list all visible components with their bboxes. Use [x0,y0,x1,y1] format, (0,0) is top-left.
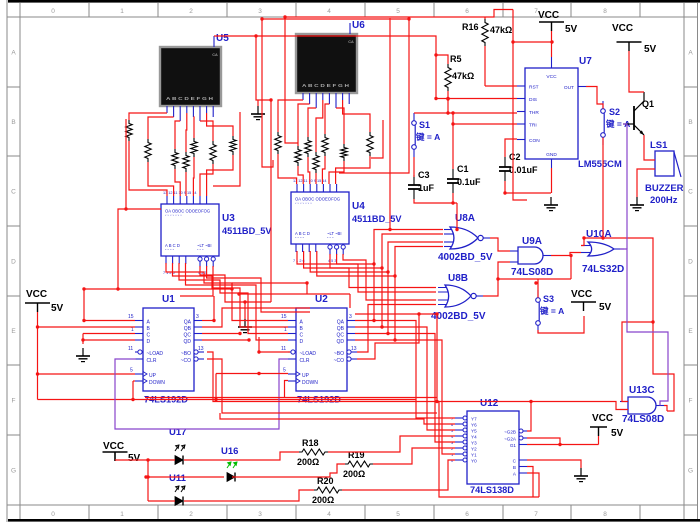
svg-text:S3: S3 [543,294,554,304]
svg-text:G1: G1 [510,443,517,448]
svg-text:47kΩ: 47kΩ [490,25,512,35]
svg-text:U16: U16 [221,446,238,457]
svg-text:1: 1 [120,511,124,518]
svg-text:15: 15 [281,314,287,320]
svg-text:200Ω: 200Ω [312,495,334,505]
svg-text:U12: U12 [480,398,499,409]
svg-text:4: 4 [327,511,331,518]
svg-text:2: 2 [189,511,193,518]
svg-text:0: 0 [51,511,55,518]
svg-text:8: 8 [603,511,607,518]
svg-text:5V: 5V [128,453,141,464]
svg-text:~LT ~BI: ~LT ~BI [327,231,342,236]
svg-text:4002BD_5V: 4002BD_5V [431,311,486,322]
svg-text:CLR: CLR [300,358,310,364]
svg-text:R18: R18 [302,438,319,448]
svg-text:A B C D E F G H: A B C D E F G H [166,96,213,101]
svg-text:~BO: ~BO [334,351,344,357]
svg-text:DOWN: DOWN [302,380,318,386]
svg-text:8: 8 [603,8,607,15]
svg-text:G: G [688,468,693,475]
svg-text:Q1: Q1 [642,99,654,109]
svg-text:U11: U11 [169,473,187,484]
svg-text:200Hz: 200Hz [650,195,678,206]
svg-text:3: 3 [258,8,262,15]
svg-text:QD: QD [184,339,192,345]
svg-text:A: A [688,50,693,57]
svg-text:~G2A: ~G2A [504,436,517,441]
svg-text:D: D [300,339,304,345]
svg-text:Y6: Y6 [471,422,477,427]
svg-text:CLR: CLR [147,358,157,364]
svg-text:CA: CA [348,40,354,44]
svg-text:ˇ ˇ ˇ ˇ ˇ ˇ ˇ: ˇ ˇ ˇ ˇ ˇ ˇ ˇ [295,202,312,207]
svg-text:Y3: Y3 [471,440,477,445]
svg-text:C: C [300,333,304,339]
svg-text:13: 13 [198,346,204,352]
svg-text:6: 6 [465,8,469,15]
svg-text:U5: U5 [216,33,229,44]
svg-text:ˇ ˇ ˇ ˇ: ˇ ˇ ˇ ˇ [165,249,175,254]
svg-text:VCC: VCC [103,441,124,452]
svg-text:F: F [12,398,16,405]
svg-text:VCC: VCC [538,10,559,21]
svg-text:D: D [11,259,16,266]
svg-text:D: D [147,339,151,345]
svg-text:5: 5 [283,368,286,374]
svg-text:~CO: ~CO [181,358,192,364]
svg-text:C3: C3 [418,170,430,180]
svg-text:4: 4 [327,8,331,15]
svg-text:0.1uF: 0.1uF [457,177,481,187]
svg-text:A B C D: A B C D [295,231,310,236]
svg-text:74LS08D: 74LS08D [622,414,664,425]
svg-text:1: 1 [120,8,124,15]
svg-text:4002BD_5V: 4002BD_5V [438,252,493,263]
svg-text:GND: GND [546,152,557,158]
svg-text:R5: R5 [450,54,462,64]
svg-text:ˇ ˇ ˇ: ˇ ˇ ˇ [197,249,204,254]
svg-text:~LOAD: ~LOAD [300,351,317,357]
svg-text:200Ω: 200Ω [343,469,365,479]
svg-text:QC: QC [337,333,345,339]
svg-text:5V: 5V [644,44,657,55]
svg-text:C: C [11,189,16,196]
svg-text:4 5 3: 4 5 3 [328,259,336,263]
svg-text:11: 11 [128,346,133,352]
svg-text:5V: 5V [565,24,578,35]
svg-text:G: G [11,468,16,475]
svg-text:QD: QD [337,339,345,345]
svg-text:QB: QB [337,326,345,332]
svg-text:2: 2 [189,8,193,15]
svg-text:QA: QA [184,320,192,326]
svg-text:200Ω: 200Ω [297,457,319,467]
svg-text:U6: U6 [352,20,365,31]
svg-text:DIS: DIS [529,97,537,103]
svg-text:3: 3 [258,511,262,518]
svg-text:4511BD_5V: 4511BD_5V [352,214,402,224]
svg-text:Y1: Y1 [471,452,477,457]
svg-text:ˇ ˇ ˇ: ˇ ˇ ˇ [327,237,334,242]
svg-text:QB: QB [184,326,192,332]
svg-text:VCC: VCC [592,413,613,424]
svg-text:~G2B: ~G2B [504,429,516,434]
svg-text:U2: U2 [315,294,328,305]
svg-text:键 = A: 键 = A [415,132,440,142]
svg-text:7 1 2 6: 7 1 2 6 [293,259,305,263]
svg-text:U8B: U8B [448,273,468,284]
svg-text:ˇ ˇ ˇ ˇ: ˇ ˇ ˇ ˇ [295,237,305,242]
svg-text:B: B [11,119,15,126]
svg-text:B: B [688,119,692,126]
svg-text:D: D [688,259,693,266]
svg-text:6: 6 [465,511,469,518]
svg-text:OA OBOC ODOEOFOG: OA OBOC ODOEOFOG [165,209,210,214]
svg-text:UP: UP [302,373,310,379]
svg-text:13: 13 [351,346,357,352]
svg-text:VCC: VCC [26,289,47,300]
svg-text:15: 15 [128,314,134,320]
svg-text:键 = A: 键 = A [539,306,564,316]
svg-text:E: E [688,328,693,335]
svg-text:5V: 5V [611,428,624,439]
svg-text:C1: C1 [457,164,469,174]
svg-text:74LS32D: 74LS32D [582,264,624,275]
svg-text:VCC: VCC [612,23,633,34]
svg-text:U4: U4 [352,201,365,212]
svg-text:1: 1 [131,327,134,333]
svg-text:3: 3 [196,314,199,320]
svg-text:S1: S1 [419,120,430,130]
svg-text:5V: 5V [599,302,612,313]
svg-text:11: 11 [281,346,286,352]
svg-text:LS1: LS1 [650,140,668,151]
svg-text:UP: UP [149,373,157,379]
svg-text:QA: QA [337,320,345,326]
svg-text:Y2: Y2 [471,446,477,451]
svg-text:B: B [513,465,516,470]
svg-text:Y4: Y4 [471,434,477,439]
svg-text:5: 5 [396,8,400,15]
svg-text:VCC: VCC [546,74,557,80]
svg-text:CA: CA [212,53,218,57]
svg-text:DOWN: DOWN [149,380,165,386]
svg-text:A B C D: A B C D [165,243,180,248]
svg-text:OUT: OUT [564,85,574,91]
svg-text:LM555CM: LM555CM [578,158,622,169]
svg-text:A B C D E F G H: A B C D E F G H [302,83,349,88]
svg-text:ˇ ˇ ˇ ˇ ˇ ˇ ˇ: ˇ ˇ ˇ ˇ ˇ ˇ ˇ [165,214,182,219]
svg-text:~CO: ~CO [334,358,345,364]
svg-text:4511BD_5V: 4511BD_5V [222,226,272,236]
svg-text:Y7: Y7 [471,416,477,421]
svg-text:R16: R16 [462,22,479,32]
svg-text:C2: C2 [509,152,521,162]
svg-text:~BO: ~BO [181,351,191,357]
svg-text:U3: U3 [222,213,235,224]
svg-text:0: 0 [51,8,55,15]
svg-text:OA OBOC ODOEOFOG: OA OBOC ODOEOFOG [295,197,340,202]
svg-text:U9A: U9A [522,236,542,247]
svg-text:U7: U7 [579,56,592,67]
svg-text:S2: S2 [609,107,620,117]
svg-text:U13C: U13C [629,385,655,396]
svg-text:3: 3 [349,314,352,320]
svg-text:RST: RST [529,85,539,91]
svg-text:U1: U1 [162,294,175,305]
svg-text:U8A: U8A [455,213,475,224]
svg-text:7: 7 [534,511,538,518]
svg-text:THR: THR [529,110,539,116]
svg-text:74LS08D: 74LS08D [511,267,553,278]
svg-text:~LT ~BI: ~LT ~BI [197,243,212,248]
svg-text:TRI: TRI [529,123,537,129]
svg-text:C: C [147,333,151,339]
svg-text:5: 5 [130,368,133,374]
svg-text:Y5: Y5 [471,428,477,433]
svg-text:1: 1 [284,327,287,333]
svg-text:VCC: VCC [571,289,592,300]
svg-text:47kΩ: 47kΩ [452,71,474,81]
svg-text:A: A [11,50,16,57]
svg-text:5: 5 [396,511,400,518]
svg-text:E: E [11,328,16,335]
svg-text:F: F [689,398,693,405]
svg-text:C: C [688,189,693,196]
svg-text:Y0: Y0 [471,458,477,463]
svg-text:CON: CON [529,138,540,144]
svg-text:5V: 5V [51,303,64,314]
svg-text:~LOAD: ~LOAD [147,351,164,357]
svg-text:BUZZER: BUZZER [645,183,684,194]
svg-text:74LS138D: 74LS138D [470,485,514,495]
svg-text:QC: QC [184,333,192,339]
svg-text:1uF: 1uF [418,183,435,193]
